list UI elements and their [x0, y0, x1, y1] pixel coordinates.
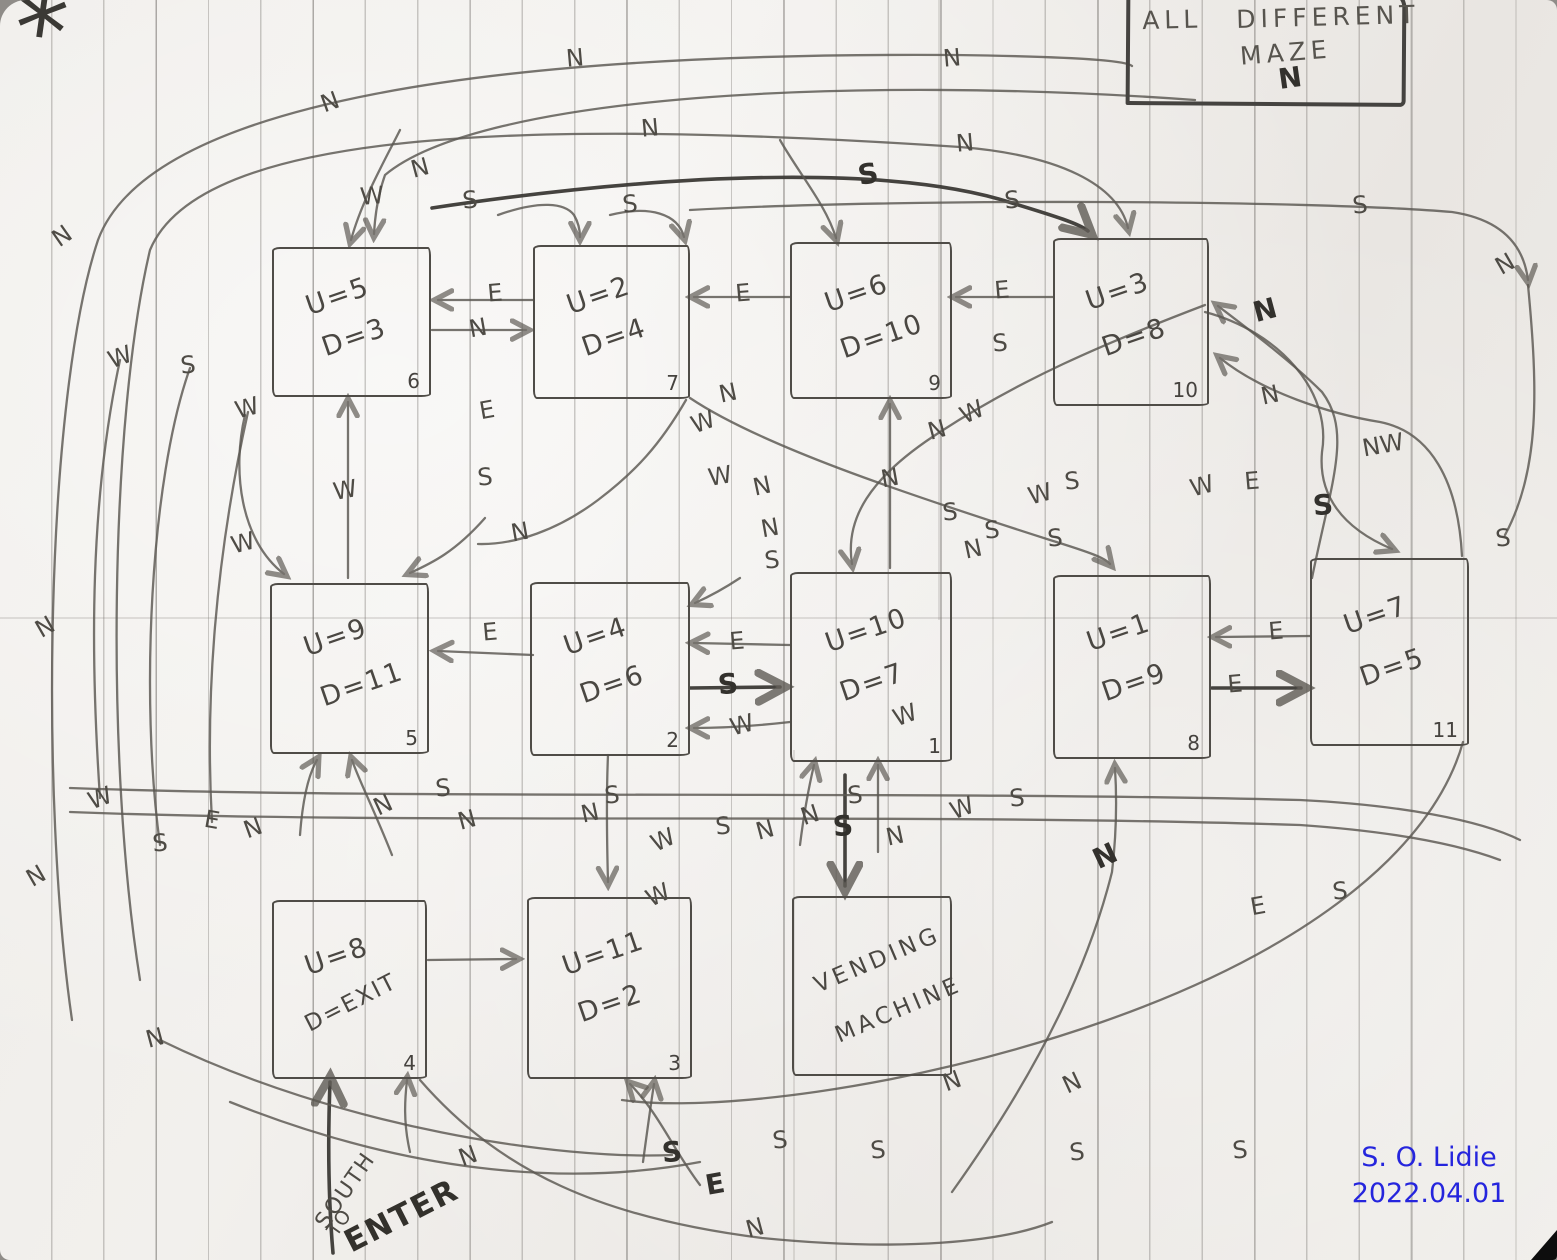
- direction-label-s: S: [151, 828, 169, 857]
- maze-title-box: ALL DIFFERENT MAZE: [1126, 0, 1407, 107]
- direction-label-e: E: [1267, 616, 1285, 645]
- room-d-value: D=10: [837, 307, 928, 364]
- room-number: 4: [403, 1051, 416, 1075]
- room-2: U=4D=62: [530, 582, 690, 756]
- room-d-value: D=4: [578, 312, 651, 363]
- scan-corner-shadow: [1531, 1230, 1557, 1260]
- direction-label-s: S: [1494, 523, 1512, 552]
- direction-label-s: S: [1063, 466, 1081, 495]
- direction-label-w: W: [331, 474, 359, 506]
- room-11: U=7D=511: [1310, 558, 1469, 746]
- passage-path: [438, 651, 533, 655]
- direction-label-e: E: [1226, 669, 1244, 698]
- room-u-value: U=9: [300, 612, 372, 663]
- direction-label-s: S: [603, 780, 621, 809]
- room-number: 10: [1173, 378, 1198, 402]
- room-d-value: D=9: [1098, 657, 1171, 708]
- room-u-value: U=1: [1083, 607, 1155, 658]
- direction-label-n: N: [942, 43, 962, 72]
- room-3: U=11D=23: [527, 897, 692, 1079]
- paper-sheet: U=5D=36U=2D=47U=6D=109U=3D=810U=9D=115U=…: [0, 0, 1557, 1260]
- passage-path: [1205, 312, 1392, 549]
- direction-label-w: W: [359, 181, 385, 211]
- passage-path: [428, 959, 516, 960]
- title-different: DIFFERENT: [1236, 0, 1420, 34]
- title-all: ALL: [1142, 5, 1203, 36]
- direction-label-s: S: [869, 1135, 887, 1164]
- direction-label-s: S: [661, 1135, 684, 1170]
- room-d-value: D=2: [574, 978, 647, 1029]
- passage-path: [1220, 358, 1462, 556]
- direction-label-s: S: [461, 185, 479, 214]
- direction-label-n: N: [955, 128, 975, 157]
- direction-label-s: S: [832, 809, 855, 844]
- direction-label-s: S: [1351, 190, 1369, 219]
- passage-path: [150, 368, 190, 845]
- room-d-value: D=8: [1097, 312, 1170, 363]
- direction-label-e: E: [486, 278, 504, 307]
- room-d-value: D=3: [317, 312, 390, 363]
- direction-label-w: W: [706, 460, 734, 492]
- room-number: 1: [928, 734, 941, 758]
- direction-label-s: S: [714, 811, 732, 840]
- direction-label-s: S: [763, 545, 781, 574]
- direction-label-s: S: [1008, 783, 1026, 812]
- room-u-value: U=10: [821, 602, 911, 659]
- direction-label-e: E: [1243, 466, 1261, 495]
- direction-label-s: S: [1312, 488, 1335, 523]
- passage-path: [374, 90, 1195, 234]
- passage-path: [420, 1080, 1052, 1245]
- direction-label-s: S: [476, 462, 494, 491]
- direction-label-s: S: [991, 328, 1009, 357]
- direction-label-s: S: [1331, 876, 1349, 905]
- signature: S. O. Lidie 2022.04.01: [1344, 1140, 1514, 1213]
- direction-label-s: S: [621, 189, 639, 218]
- room-5: U=9D=115: [270, 583, 429, 754]
- passage-path: [70, 788, 1520, 840]
- direction-label-n: N: [565, 43, 585, 72]
- room-8: U=1D=98: [1053, 575, 1211, 759]
- passage-path: [432, 177, 1088, 231]
- passage-path: [780, 140, 836, 238]
- direction-label-e: E: [481, 617, 499, 646]
- room-7: U=2D=47: [533, 245, 690, 399]
- room-u-value: U=5: [302, 271, 374, 322]
- room-d-value: D=6: [576, 659, 649, 710]
- passage-path: [643, 1084, 654, 1162]
- room-number: 9: [928, 371, 941, 395]
- direction-label-s: S: [179, 350, 197, 379]
- signature-name: S. O. Lidie: [1344, 1140, 1514, 1176]
- direction-label-s: S: [941, 497, 959, 526]
- room-number: 2: [666, 728, 679, 752]
- room-number: 6: [407, 369, 420, 393]
- passage-path: [1216, 636, 1310, 637]
- direction-label-e: E: [728, 626, 746, 655]
- direction-label-s: S: [717, 667, 740, 702]
- room-number: 11: [1433, 718, 1458, 742]
- direction-label-n: N: [640, 113, 660, 142]
- signature-date: 2022.04.01: [1344, 1176, 1514, 1212]
- vending-machine: VENDINGMACHINE: [792, 896, 952, 1076]
- direction-label-s: S: [1003, 185, 1021, 214]
- direction-label-e: E: [734, 278, 752, 307]
- room-u-value: U=11: [558, 925, 648, 982]
- direction-label-s: S: [1231, 1135, 1249, 1164]
- passage-path: [952, 768, 1116, 1192]
- room-u-value: U=7: [1340, 591, 1412, 642]
- direction-label-s: S: [846, 780, 864, 809]
- room-d-value: D=7: [836, 657, 909, 708]
- passage-path: [610, 211, 684, 237]
- room-10: U=3D=810: [1053, 238, 1209, 406]
- passage-path: [405, 1080, 410, 1152]
- passage-path: [410, 518, 485, 573]
- room-number: 7: [666, 371, 679, 395]
- direction-label-s: S: [1046, 523, 1064, 552]
- room-d-value: D=11: [316, 655, 407, 712]
- room-u-value: U=8: [301, 931, 373, 982]
- passage-path: [300, 760, 317, 835]
- room-9: U=6D=109: [790, 242, 952, 399]
- room-4: U=8D=EXIT4: [272, 900, 427, 1079]
- passage-path: [1505, 285, 1534, 535]
- passage-path: [1218, 306, 1337, 578]
- room-1: U=10D=71: [790, 572, 952, 762]
- direction-label-s: S: [434, 773, 452, 802]
- passage-path: [210, 412, 248, 822]
- direction-label-s: S: [1068, 1137, 1086, 1166]
- passage-path: [70, 812, 1500, 860]
- room-u-value: U=6: [820, 268, 892, 319]
- room-number: 5: [405, 726, 418, 750]
- room-u-value: U=4: [560, 612, 632, 663]
- direction-label-s: S: [983, 515, 1001, 544]
- room-number: 8: [1187, 731, 1200, 755]
- room-u-value: U=3: [1082, 266, 1154, 317]
- room-6: U=5D=36: [272, 247, 431, 397]
- title-maze: MAZE: [1239, 35, 1333, 71]
- passage-path: [498, 205, 580, 237]
- passage-path: [695, 578, 740, 603]
- room-d-value: D=5: [1355, 642, 1428, 693]
- direction-label-s: S: [771, 1125, 789, 1154]
- room-u-value: U=2: [562, 270, 634, 321]
- room-number: 3: [668, 1051, 681, 1075]
- direction-label-e: E: [993, 275, 1011, 304]
